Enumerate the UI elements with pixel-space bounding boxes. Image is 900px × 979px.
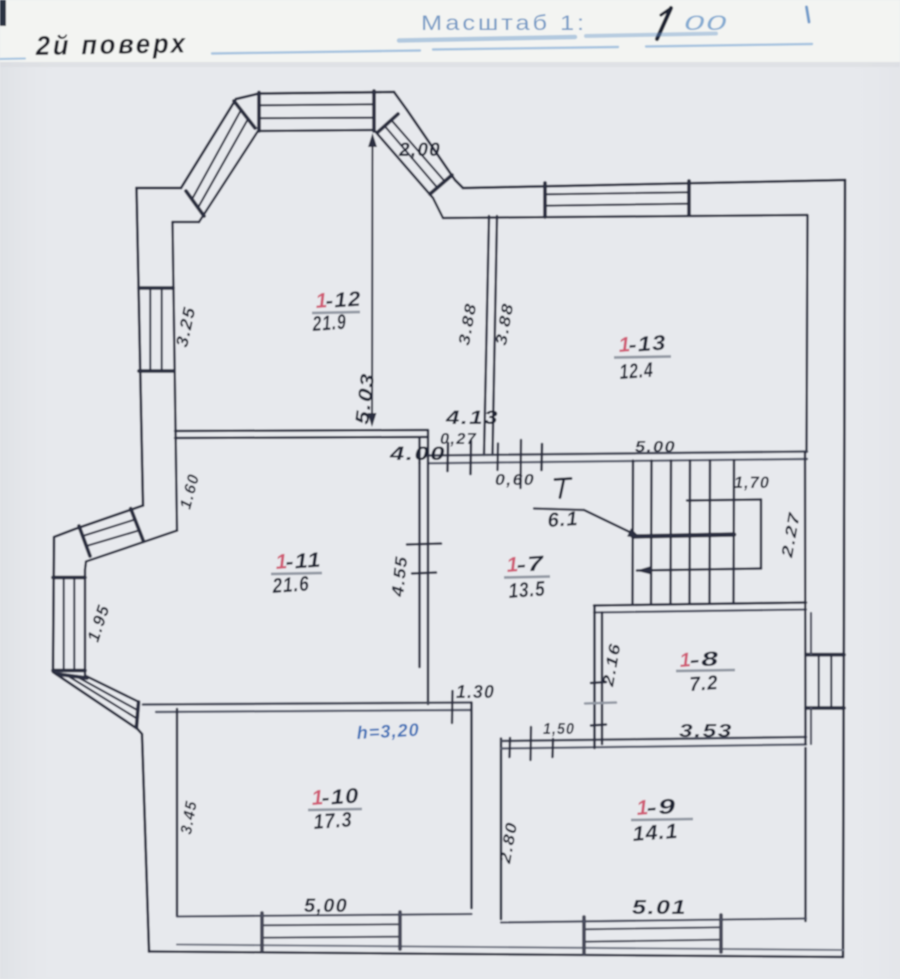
svg-text:-9: -9	[646, 795, 678, 820]
svg-text:5,00: 5,00	[304, 896, 348, 917]
svg-text:7.2: 7.2	[689, 672, 719, 696]
svg-text:-8: -8	[689, 648, 720, 672]
svg-text:Масштаб 1:: Масштаб 1:	[421, 11, 587, 35]
svg-text:-7: -7	[516, 552, 546, 577]
svg-text:0,60: 0,60	[495, 472, 535, 489]
svg-text:00: 00	[684, 12, 728, 35]
svg-text:-12: -12	[325, 288, 363, 313]
svg-text:17.3: 17.3	[313, 808, 354, 834]
svg-text:2,00: 2,00	[398, 140, 441, 161]
svg-text:5.01: 5.01	[632, 897, 687, 919]
svg-text:h=3,20: h=3,20	[356, 720, 420, 743]
svg-text:14.1: 14.1	[632, 820, 679, 846]
svg-text:1.30: 1.30	[456, 682, 495, 702]
svg-text:-13: -13	[628, 331, 668, 357]
svg-text:12.4: 12.4	[619, 359, 655, 384]
svg-text:21.9: 21.9	[311, 311, 347, 336]
svg-text:21.6: 21.6	[271, 572, 310, 598]
svg-text:6.1: 6.1	[547, 508, 579, 532]
svg-text:-11: -11	[285, 549, 323, 574]
svg-text:4.13: 4.13	[445, 408, 499, 429]
svg-text:1,50: 1,50	[543, 721, 575, 738]
svg-text:4.00: 4.00	[389, 444, 446, 465]
svg-text:2й поверх: 2й поверх	[35, 28, 188, 61]
svg-text:-10: -10	[321, 784, 361, 810]
svg-text:1,70: 1,70	[734, 473, 770, 492]
svg-text:3.53: 3.53	[679, 721, 733, 741]
svg-text:13.5: 13.5	[508, 577, 547, 603]
svg-text:0,27: 0,27	[440, 431, 477, 448]
svg-text:5.00: 5.00	[635, 439, 676, 456]
